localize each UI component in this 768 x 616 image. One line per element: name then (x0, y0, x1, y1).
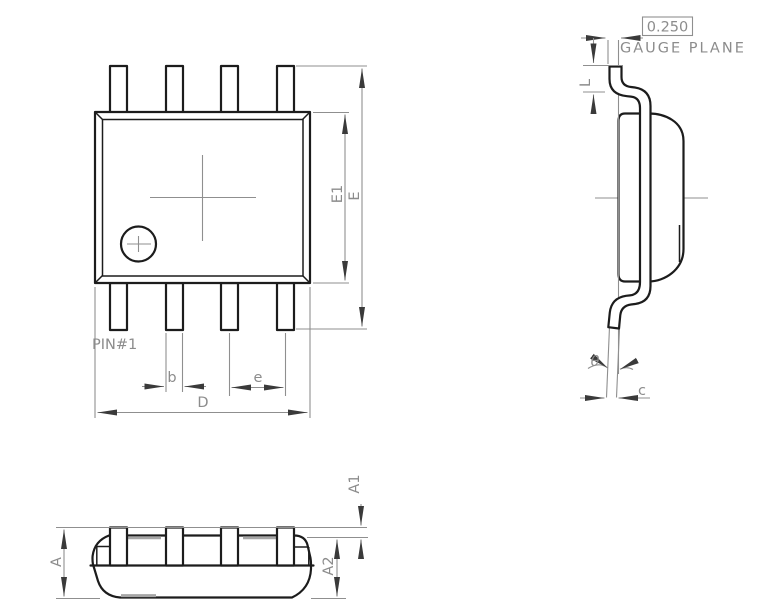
label-A2: A2 (321, 556, 337, 575)
dimension-A2: A2 (307, 538, 368, 599)
top-view-pins-top (110, 66, 294, 113)
dimension-c: c (580, 383, 650, 399)
label-E1: E1 (330, 185, 346, 203)
pin (277, 283, 294, 330)
label-e: e (254, 370, 263, 386)
label-c: c (638, 383, 646, 399)
lead (110, 528, 127, 566)
top-view-pins-bottom (110, 283, 294, 330)
pin (110, 283, 127, 330)
lead (221, 528, 238, 566)
pin (166, 66, 183, 113)
dimension-theta: θ (588, 354, 633, 370)
front-view: A A2 A1 (49, 474, 368, 598)
pin (166, 283, 183, 330)
pin (277, 66, 294, 113)
drawing-svg: E1 E b e (0, 0, 768, 616)
lead (166, 528, 183, 566)
label-A: A (49, 557, 65, 567)
package-outline-drawing: E1 E b e (0, 0, 768, 616)
dimension-E1: E1 (313, 113, 349, 284)
top-view: E1 E b e (92, 66, 367, 418)
dimension-e: e (230, 333, 286, 396)
lead (277, 528, 294, 566)
label-E: E (347, 191, 363, 200)
label-gauge-value: 0.250 (647, 20, 689, 36)
side-view: 0.250 GAUGE PLANE L θ c (578, 17, 746, 399)
label-pin1: PIN#1 (92, 337, 137, 353)
label-D: D (197, 395, 208, 411)
pin (221, 283, 238, 330)
label-A1: A1 (347, 474, 363, 493)
dimension-b: b (142, 333, 206, 392)
dimension-A1: A1 (347, 474, 363, 557)
pin (110, 66, 127, 113)
label-b: b (167, 370, 176, 386)
label-theta: θ (591, 354, 600, 370)
dimension-gauge: 0.250 GAUGE PLANE (581, 17, 746, 64)
label-L: L (578, 79, 594, 87)
label-gauge-plane: GAUGE PLANE (620, 41, 746, 57)
pin (221, 66, 238, 113)
